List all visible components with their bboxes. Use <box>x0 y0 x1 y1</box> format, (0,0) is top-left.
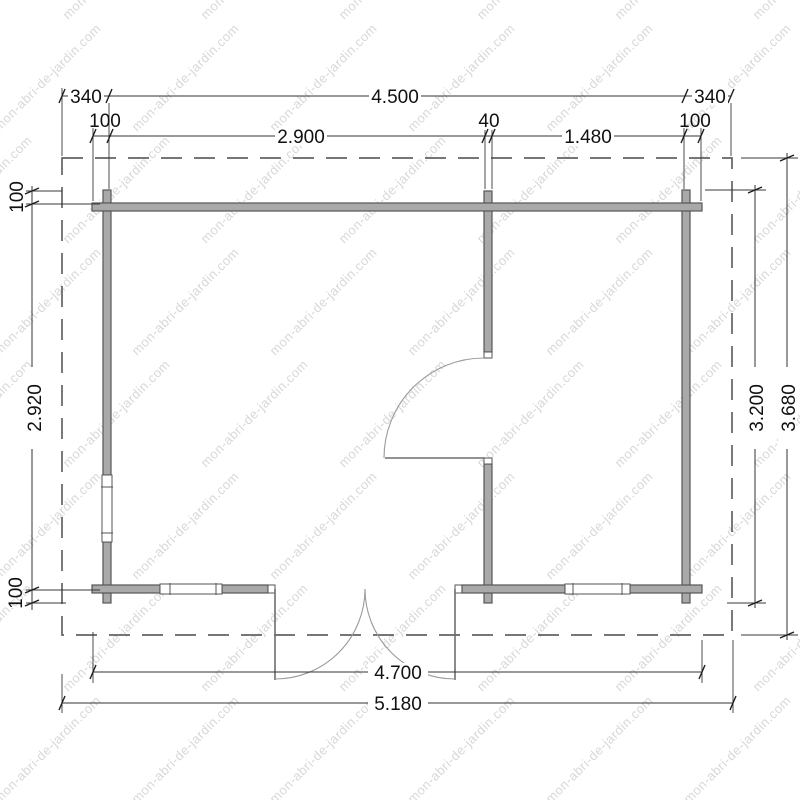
double-door-jamb-cap-left <box>268 585 275 593</box>
watermark-text: mon-abri-de-jardin.com <box>129 21 242 134</box>
watermark-text: mon-abri-de-jardin.com <box>267 693 380 800</box>
wall-top <box>92 203 702 211</box>
wall-bottom-seg2 <box>222 585 268 593</box>
watermark-text: mon-abri-de-jardin.com <box>60 133 173 246</box>
watermark-text: mon-abri-de-jardin.com <box>543 245 656 358</box>
dim-100-top-left: 100 <box>89 111 121 132</box>
watermark-text: mon-abri-de-jardin.com <box>405 21 518 134</box>
dim-3200: 3.200 <box>747 384 768 432</box>
watermark-text: mon-abri-de-jardin.com <box>129 245 242 358</box>
watermark-text: mon-abri-de-jardin.com <box>543 21 656 134</box>
watermark-text: mon-abri-de-jardin.com <box>0 0 35 22</box>
watermark-text: mon-abri-de-jardin.com <box>681 693 794 800</box>
watermark-text: mon-abri-de-jardin.com <box>267 245 380 358</box>
double-door-jamb-cap-right <box>455 585 462 593</box>
window-bottom-left <box>160 584 222 594</box>
wall-bottom-seg4 <box>630 585 702 593</box>
watermark-text: mon-abri-de-jardin.com <box>60 357 173 470</box>
wall-right <box>682 190 690 603</box>
dim-4700: 4.700 <box>374 663 422 684</box>
floor-plan-canvas: mon-abri-de-jardin.common-abri-de-jardin… <box>0 0 800 800</box>
watermark-text: mon-abri-de-jardin.com <box>198 357 311 470</box>
watermark-text: mon-abri-de-jardin.com <box>198 0 311 22</box>
dim-40-partition: 40 <box>478 111 499 132</box>
door-jamb-cap-bottom <box>484 458 492 464</box>
dim-100-top-right: 100 <box>679 111 711 132</box>
watermark-text: mon-abri-de-jardin.com <box>750 581 800 694</box>
dim-1480: 1.480 <box>564 127 612 148</box>
watermark-text: mon-abri-de-jardin.com <box>336 0 449 22</box>
watermark-text: mon-abri-de-jardin.com <box>336 357 449 470</box>
window-bottom-right <box>565 584 630 594</box>
watermark-text: mon-abri-de-jardin.com <box>0 245 104 358</box>
watermark-text: mon-abri-de-jardin.com <box>60 581 173 694</box>
watermark-text: mon-abri-de-jardin.com <box>750 0 800 22</box>
partition-wall-lower <box>484 464 492 603</box>
watermark-text: mon-abri-de-jardin.com <box>60 0 173 22</box>
window-left-wall <box>102 475 112 542</box>
watermark-text: mon-abri-de-jardin.com <box>681 245 794 358</box>
watermark-text: mon-abri-de-jardin.com <box>198 133 311 246</box>
watermark-text: mon-abri-de-jardin.com <box>129 693 242 800</box>
wall-left-upper <box>103 190 111 475</box>
floor-plan-svg: mon-abri-de-jardin.common-abri-de-jardin… <box>0 0 800 800</box>
watermark-text: mon-abri-de-jardin.com <box>612 357 725 470</box>
dim-340-right: 340 <box>694 87 726 108</box>
watermark-text: mon-abri-de-jardin.com <box>612 133 725 246</box>
dim-2920: 2.920 <box>25 384 46 432</box>
door-jamb-cap-top <box>484 352 492 358</box>
dim-100-left-top: 100 <box>7 181 28 213</box>
watermark-text: mon-abri-de-jardin.com <box>474 0 587 22</box>
watermark-text: mon-abri-de-jardin.com <box>474 357 587 470</box>
watermark-text: mon-abri-de-jardin.com <box>129 469 242 582</box>
watermark-text: mon-abri-de-jardin.com <box>0 469 104 582</box>
watermark-text: mon-abri-de-jardin.com <box>0 693 104 800</box>
watermark-text: mon-abri-de-jardin.com <box>405 469 518 582</box>
wall-left-lower <box>103 542 111 603</box>
partition-wall-upper <box>484 191 492 352</box>
wall-bottom-seg3 <box>462 585 565 593</box>
dim-4500: 4.500 <box>371 87 419 108</box>
walls-group <box>92 190 702 603</box>
wall-bottom-seg1 <box>92 585 160 593</box>
dim-100-left-bottom: 100 <box>6 577 27 609</box>
dimension-top-row-2: 100 2.900 40 1.480 100 <box>89 111 711 148</box>
dim-3680: 3.680 <box>779 384 800 432</box>
dim-2900: 2.900 <box>277 127 325 148</box>
doors-group <box>275 358 484 680</box>
watermark-text: mon-abri-de-jardin.com <box>336 133 449 246</box>
watermark-text: mon-abri-de-jardin.com <box>405 245 518 358</box>
watermark-text: mon-abri-de-jardin.com <box>612 581 725 694</box>
dim-5180: 5.180 <box>374 694 422 715</box>
watermark-text: mon-abri-de-jardin.com <box>543 693 656 800</box>
watermark-text: mon-abri-de-jardin.com <box>543 469 656 582</box>
watermark-text: mon-abri-de-jardin.com <box>612 0 725 22</box>
watermark-text: mon-abri-de-jardin.com <box>681 469 794 582</box>
watermark-text: mon-abri-de-jardin.com <box>267 21 380 134</box>
dim-340-left: 340 <box>70 87 102 108</box>
watermark-text: mon-abri-de-jardin.com <box>267 469 380 582</box>
